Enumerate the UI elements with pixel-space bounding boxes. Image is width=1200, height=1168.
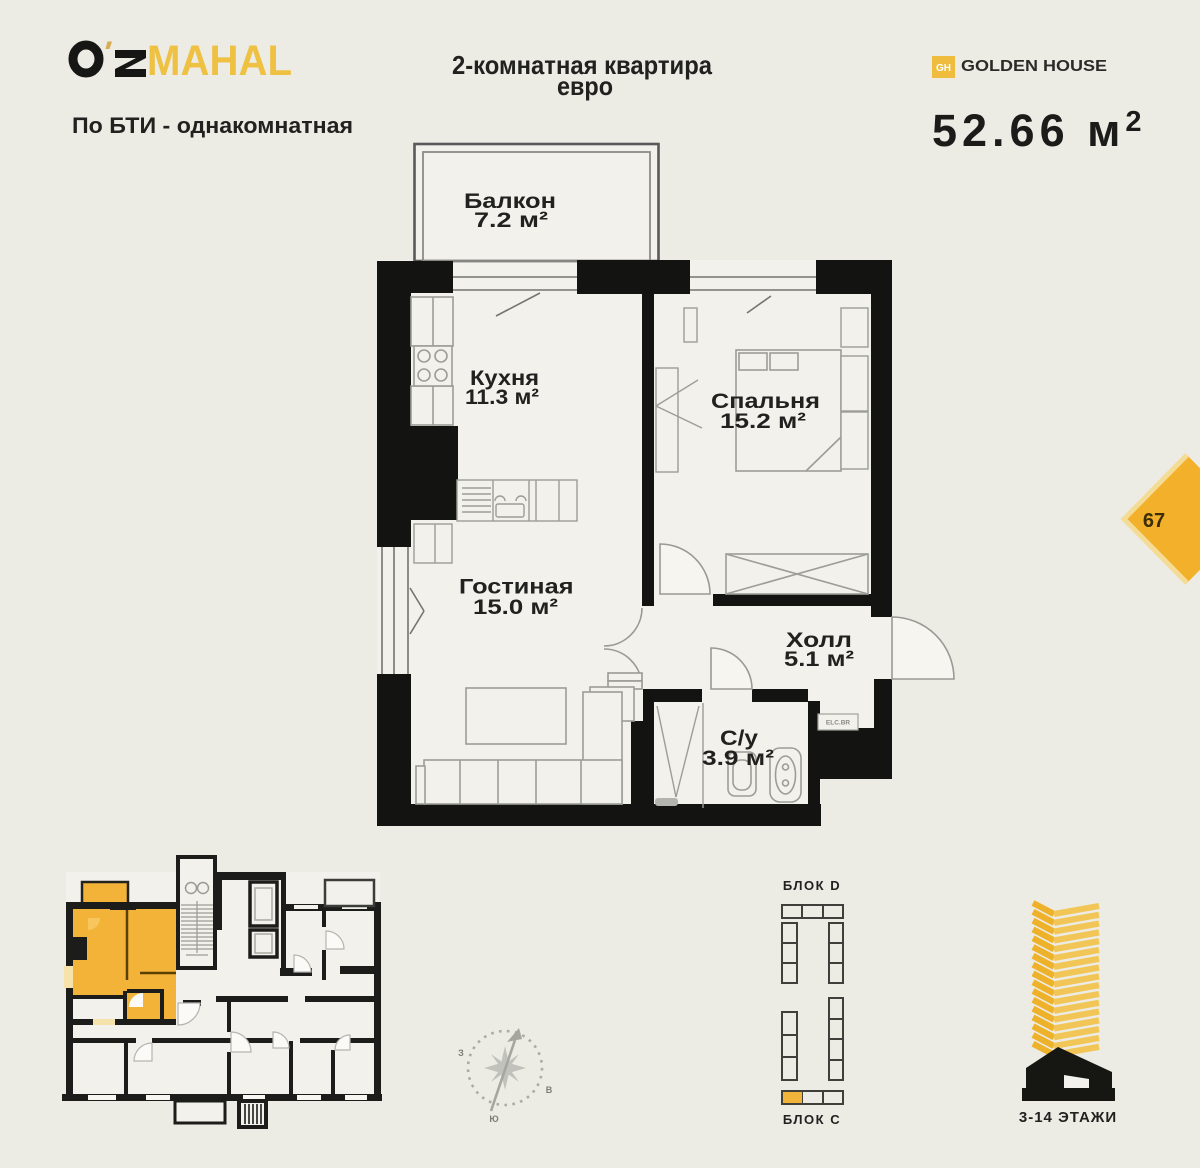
svg-text:7.2 м²: 7.2 м² [474,208,548,232]
svg-text:11.3 м²: 11.3 м² [465,385,539,409]
svg-text:ELC.BR: ELC.BR [826,720,851,727]
svg-text:З: З [458,1048,464,1058]
svg-text:БЛОК C: БЛОК C [783,1112,841,1127]
svg-text:По БТИ - однакомнатная: По БТИ - однакомнатная [72,113,353,138]
svg-text:3.9 м²: 3.9 м² [702,746,774,770]
svg-text:15.0 м²: 15.0 м² [473,595,558,619]
svg-text:5.1 м²: 5.1 м² [784,647,854,671]
svg-text:67: 67 [1143,510,1165,532]
svg-text:евро: евро [557,71,613,101]
svg-text:GH: GH [936,63,951,74]
svg-text:52.66 м2: 52.66 м2 [932,105,1142,156]
svg-text:В: В [546,1085,553,1095]
svg-text:Ю: Ю [489,1114,498,1124]
svg-text:БЛОК D: БЛОК D [783,878,841,893]
svg-text:MAHAL: MAHAL [147,37,292,85]
svg-text:3-14 ЭТАЖИ: 3-14 ЭТАЖИ [1019,1109,1117,1126]
svg-text:15.2 м²: 15.2 м² [720,409,806,433]
svg-text:GOLDEN HOUSE: GOLDEN HOUSE [961,58,1107,75]
